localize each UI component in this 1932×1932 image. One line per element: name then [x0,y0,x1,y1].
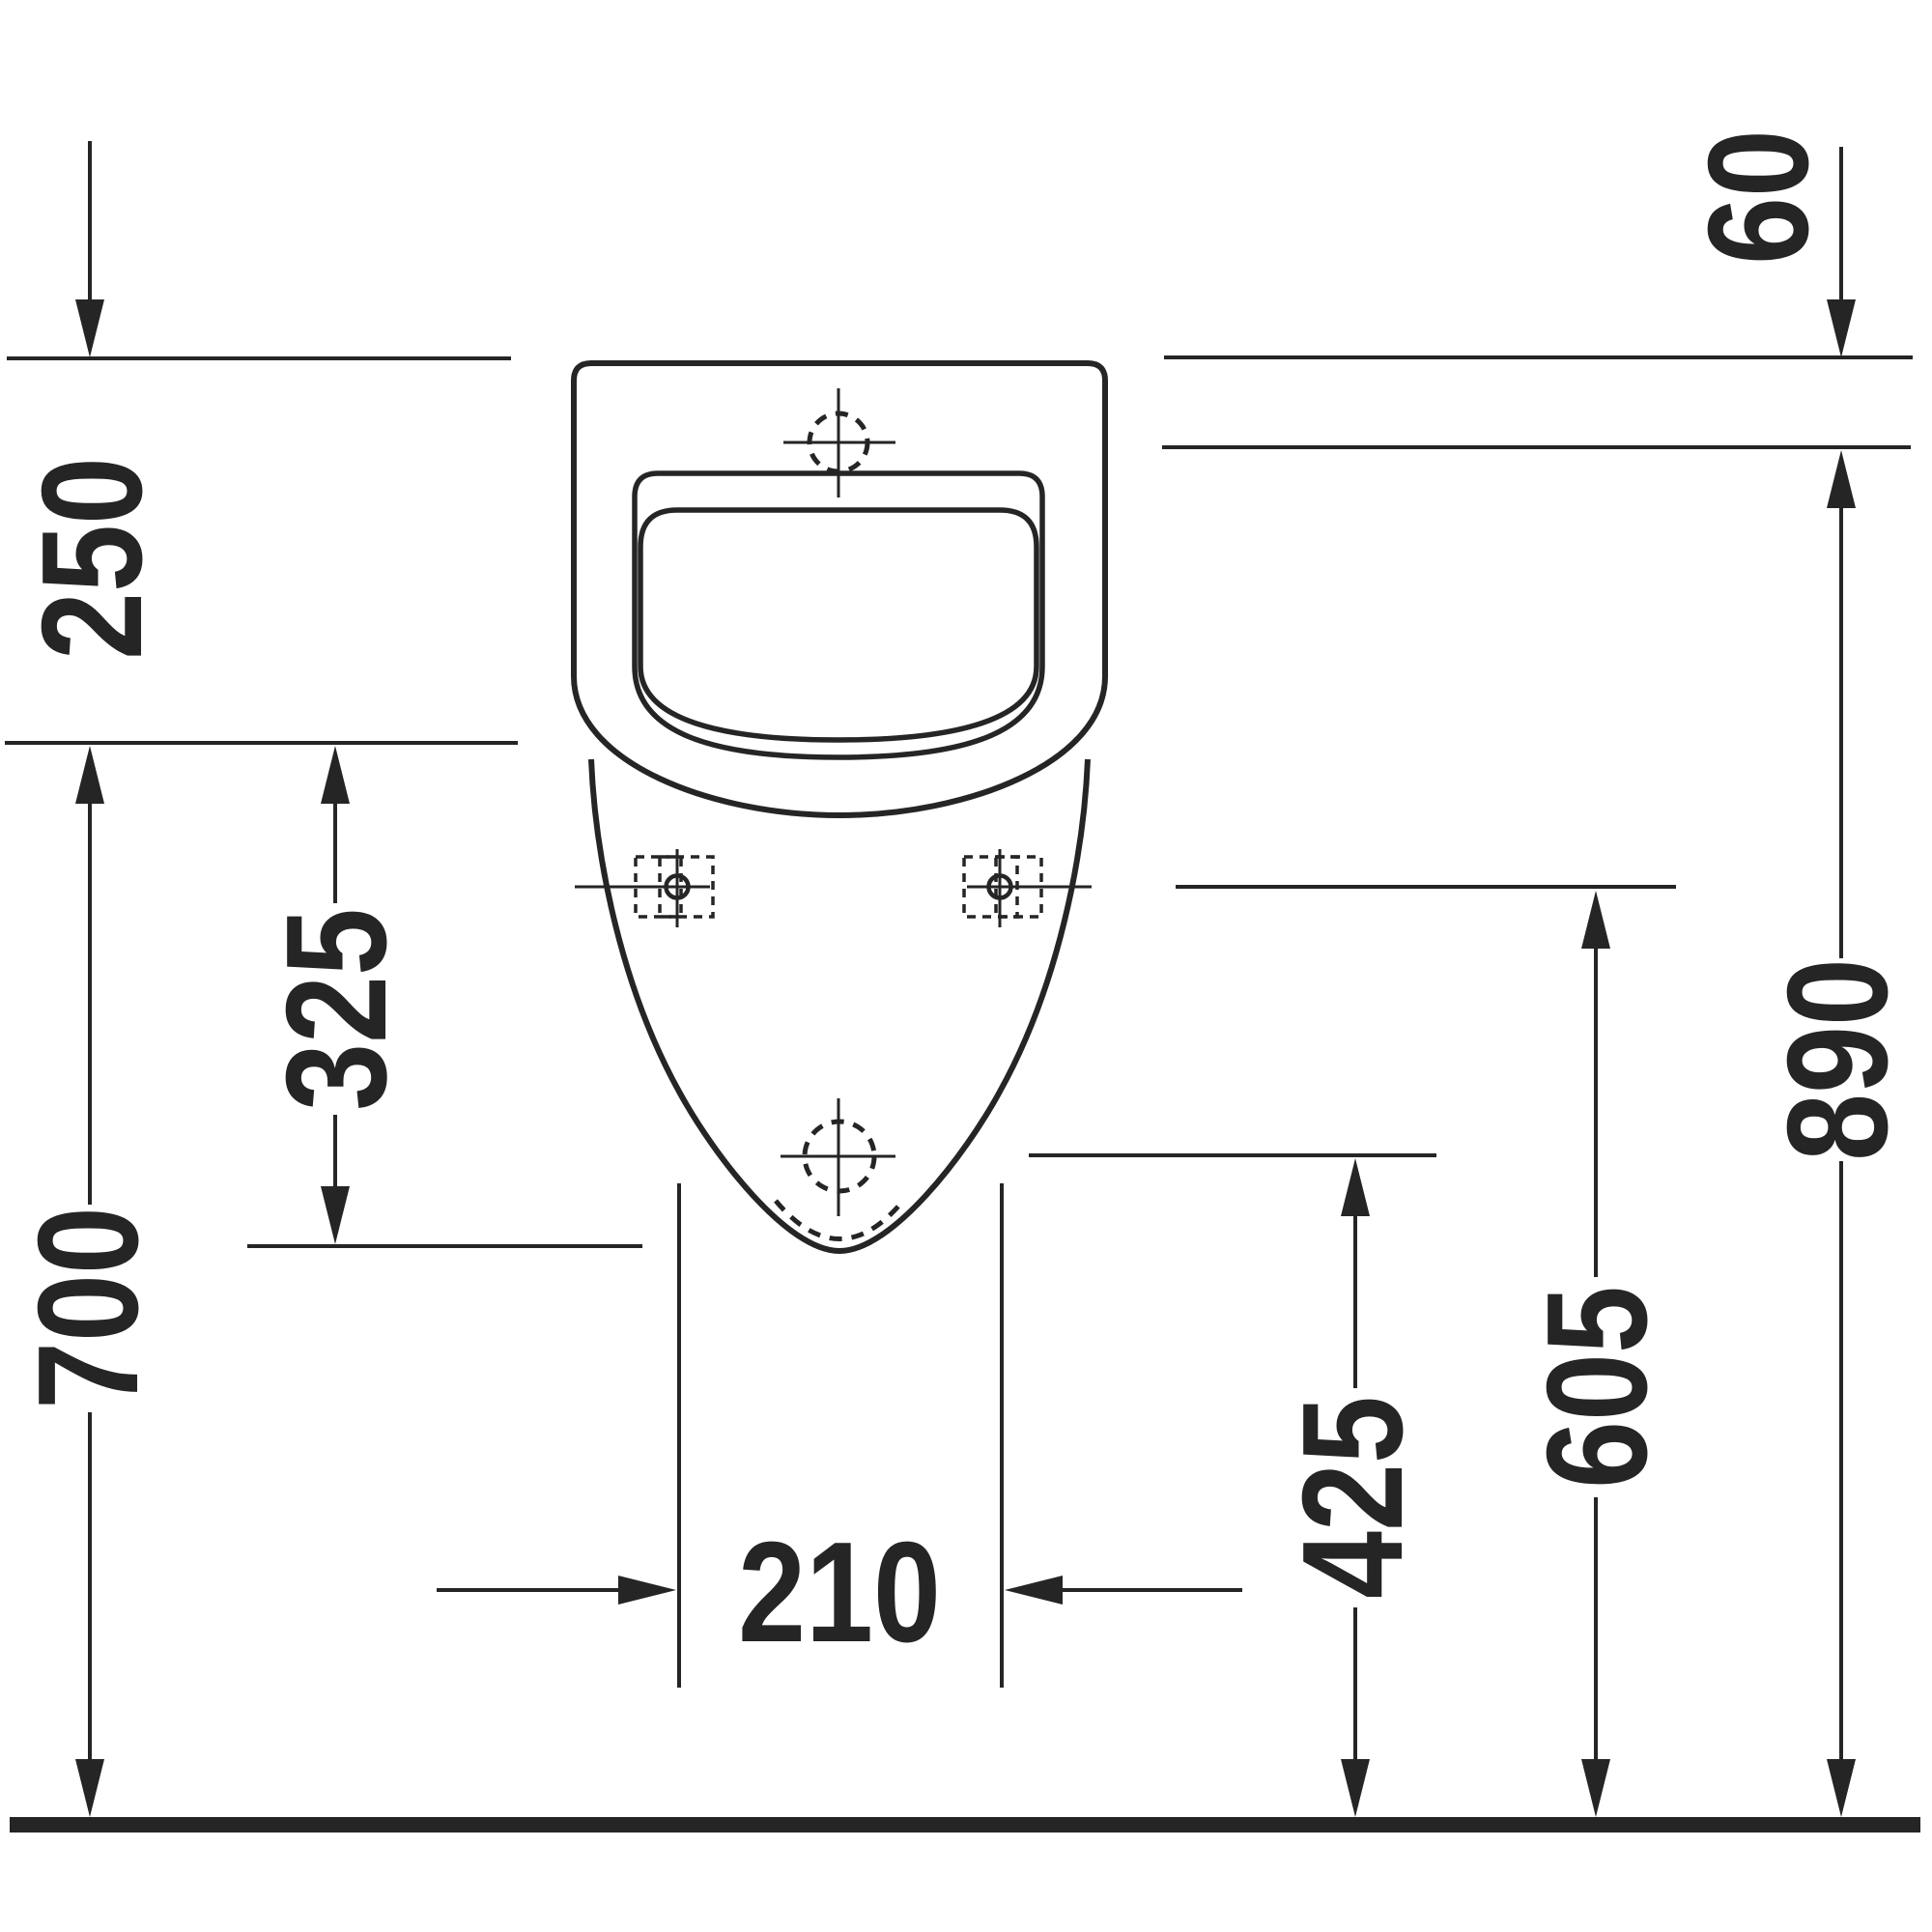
svg-text:605: 605 [1518,1286,1677,1489]
svg-text:325: 325 [257,908,416,1111]
svg-text:60: 60 [1679,129,1838,265]
svg-text:425: 425 [1273,1396,1433,1599]
svg-text:890: 890 [1758,958,1918,1161]
svg-text:700: 700 [9,1207,168,1409]
svg-text:250: 250 [13,457,172,660]
svg-text:210: 210 [738,1513,941,1672]
